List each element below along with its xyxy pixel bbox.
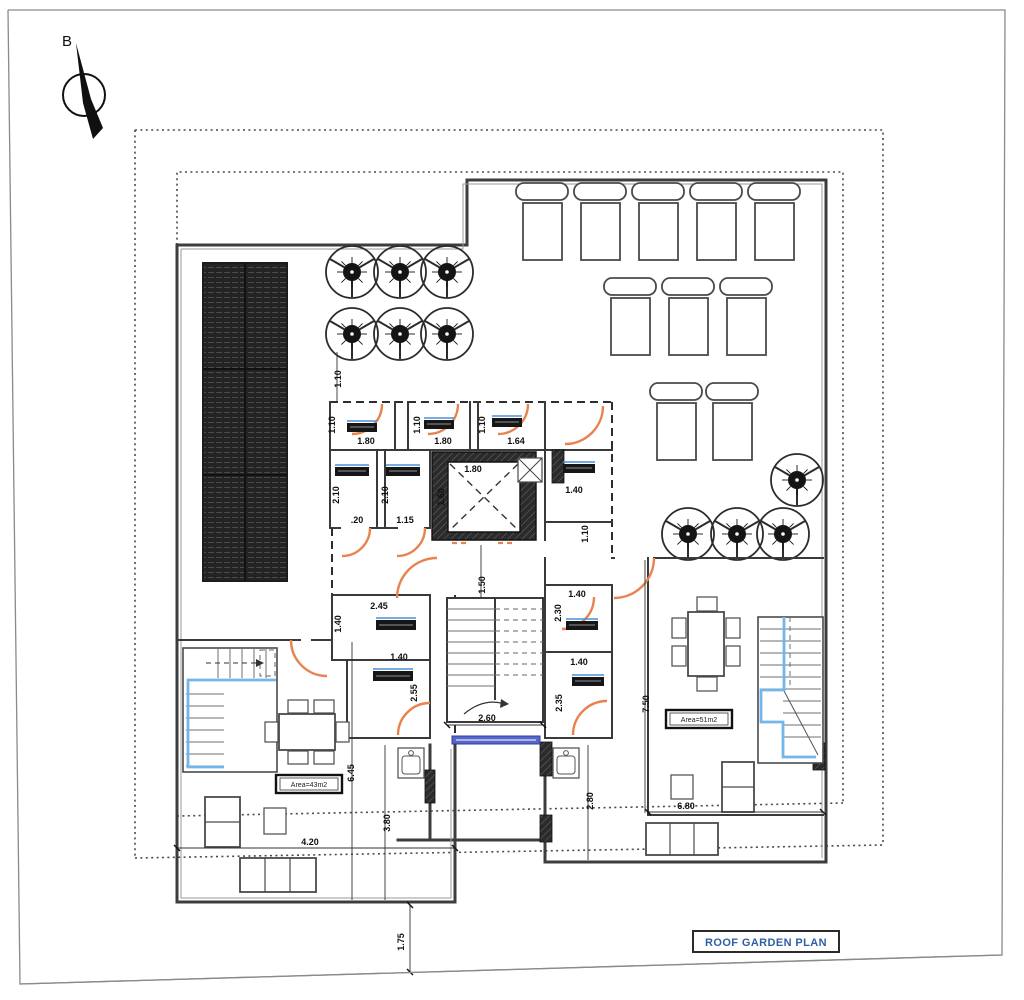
dim-label: 1.50	[477, 576, 487, 594]
side-table-right	[671, 775, 693, 799]
area-label-left: Area=43m2	[291, 782, 327, 789]
dim-label: 2.80	[585, 792, 595, 810]
dim-label: 1.80	[357, 436, 375, 446]
room-tag	[572, 675, 604, 686]
dim-label: 1.80	[464, 464, 482, 474]
dim-label: 2.10	[380, 486, 390, 504]
room-tag	[492, 416, 522, 427]
dim-label: 1.10	[477, 416, 487, 434]
room-tag	[424, 418, 454, 429]
elevator	[432, 452, 542, 543]
room-tag	[347, 421, 377, 432]
stairs-right	[758, 617, 823, 763]
page-border	[8, 10, 1005, 984]
sofa-left	[240, 858, 316, 892]
dim-label: .20	[351, 515, 364, 525]
solar-panel-array	[203, 263, 287, 581]
room-tag	[335, 465, 369, 476]
dim-label: 2.55	[409, 684, 419, 702]
dim-label: 1.40	[390, 652, 408, 662]
roof-garden-plan-page: B	[0, 0, 1024, 1000]
dim-label: 1.10	[333, 370, 343, 388]
room-tag	[373, 669, 413, 681]
area-badge-right: Area=51m2	[666, 710, 732, 728]
dim-label: 2.10	[331, 486, 341, 504]
room-tag	[386, 465, 420, 476]
dim-label: 6.80	[677, 801, 695, 811]
dining-table-right	[672, 597, 740, 691]
dim-label: 2.60	[478, 713, 496, 723]
ground-line	[20, 955, 1002, 984]
dim-label: 1.75	[396, 933, 406, 951]
room-tag	[376, 618, 416, 630]
sofa-right	[646, 823, 718, 855]
room-tag	[563, 462, 595, 473]
north-needle	[76, 43, 103, 139]
dim-label: 1.64	[507, 436, 525, 446]
dim-label: 1.10	[327, 416, 337, 434]
area-badge-left: Area=43m2	[276, 775, 342, 793]
dim-label: 1.15	[396, 515, 414, 525]
dim-label: 1.40	[570, 657, 588, 667]
armchair-left	[205, 797, 240, 847]
dim-label: 1.60	[436, 488, 446, 506]
north-label: B	[62, 33, 72, 50]
dim-label: 1.40	[333, 615, 343, 633]
armchair-right	[722, 762, 754, 812]
dim-label: 1.40	[568, 589, 586, 599]
dim-label: 2.35	[554, 694, 564, 712]
stairs-left	[183, 648, 277, 772]
dim-label: 3.80	[382, 814, 392, 832]
dim-label: 1.10	[412, 416, 422, 434]
dim-label: 6.45	[346, 764, 356, 782]
coffee-table-left	[264, 808, 286, 834]
dim-label: 4.20	[301, 837, 319, 847]
dim-label: 1.80	[434, 436, 452, 446]
dim-label: 2.30	[553, 604, 563, 622]
title-box: ROOF GARDEN PLAN	[693, 931, 839, 952]
drain-unit-right	[553, 748, 579, 778]
north-arrow: B	[62, 33, 105, 139]
dim-label: 2.45	[370, 601, 388, 611]
area-label-right: Area=51m2	[681, 717, 717, 724]
dim-label: 1.10	[580, 525, 590, 543]
drain-unit-left	[398, 748, 424, 778]
dim-label: 1.40	[565, 485, 583, 495]
floor-plan-drawing: B	[0, 0, 1024, 1000]
plan-title: ROOF GARDEN PLAN	[705, 937, 827, 949]
sun-loungers	[516, 183, 800, 460]
dim-label: 7.50	[641, 695, 651, 713]
